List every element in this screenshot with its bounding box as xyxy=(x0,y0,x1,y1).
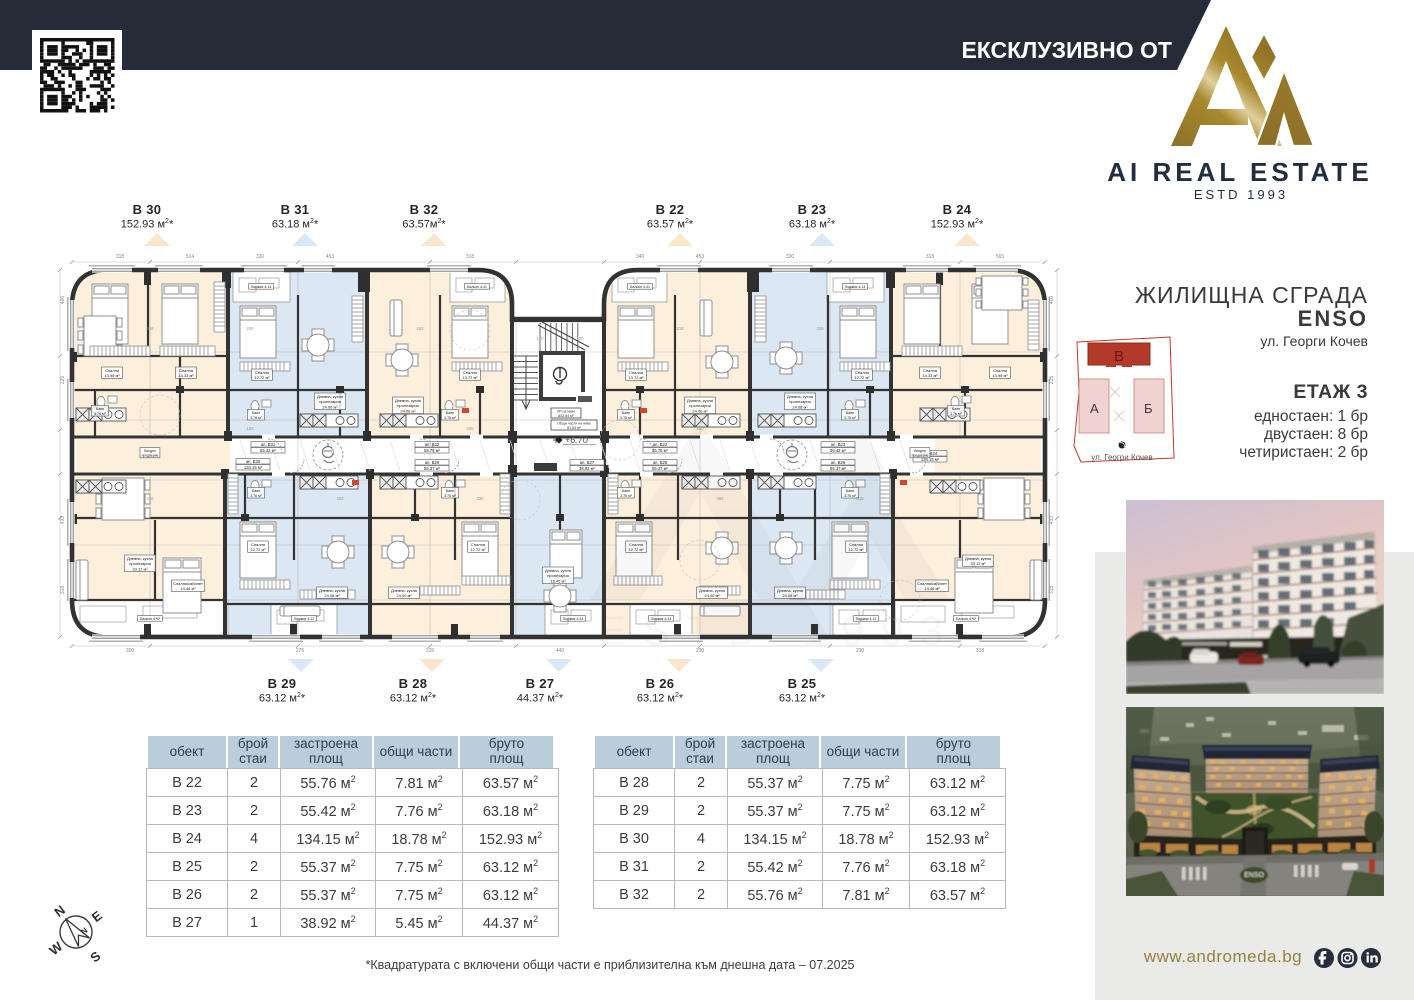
svg-text:Баня: Баня xyxy=(846,411,854,415)
svg-text:81.53 м²: 81.53 м² xyxy=(567,426,581,430)
svg-text:318: 318 xyxy=(60,586,66,595)
svg-text:S: S xyxy=(87,948,103,965)
svg-text:200: 200 xyxy=(247,326,255,331)
svg-text:453: 453 xyxy=(417,326,425,331)
svg-text:514: 514 xyxy=(186,254,195,260)
svg-text:+6.70: +6.70 xyxy=(565,435,588,445)
svg-text:Лоджия 4.14: Лоджия 4.14 xyxy=(251,285,272,289)
svg-text:Б: Б xyxy=(1144,401,1153,416)
svg-text:330: 330 xyxy=(477,496,485,501)
svg-text:Баня: Баня xyxy=(622,411,630,415)
svg-text:170: 170 xyxy=(537,336,545,341)
svg-text:3.76 м²: 3.76 м² xyxy=(444,494,456,498)
svg-text:225: 225 xyxy=(60,376,66,385)
svg-text:55.76 м²: 55.76 м² xyxy=(652,448,669,453)
svg-text:33.12 м²: 33.12 м² xyxy=(970,561,986,566)
svg-text:ESTD 1993: ESTD 1993 xyxy=(1194,187,1288,202)
svg-text:318: 318 xyxy=(466,254,475,260)
svg-text:453: 453 xyxy=(696,254,705,260)
svg-text:832.64 м²: 832.64 м² xyxy=(558,414,574,418)
svg-text:318: 318 xyxy=(976,648,985,654)
svg-text:14.33 м²: 14.33 м² xyxy=(922,373,938,378)
svg-text:55.37 м²: 55.37 м² xyxy=(424,466,441,471)
svg-text:3.76 м²: 3.76 м² xyxy=(94,412,106,416)
svg-text:Входно: Входно xyxy=(914,449,926,453)
svg-text:ап. В31: ап. В31 xyxy=(261,442,276,447)
svg-text:ул. Геогри Кочев: ул. Геогри Кочев xyxy=(1091,453,1153,462)
svg-text:Лоджия 4.14: Лоджия 4.14 xyxy=(845,285,866,289)
svg-text:Лоджия 4.44: Лоджия 4.44 xyxy=(563,617,584,621)
svg-text:24.08 м²: 24.08 м² xyxy=(792,404,808,409)
svg-text:12.72 м²: 12.72 м² xyxy=(854,375,870,380)
svg-text:ап. В30: ап. В30 xyxy=(246,459,261,464)
svg-text:318: 318 xyxy=(147,496,155,501)
svg-text:14.46 м²: 14.46 м² xyxy=(180,586,196,591)
svg-text:440: 440 xyxy=(556,648,565,654)
svg-text:3.76 м²: 3.76 м² xyxy=(620,494,632,498)
svg-text:400: 400 xyxy=(1049,296,1055,305)
svg-text:24.00 м²: 24.00 м² xyxy=(704,593,720,598)
svg-text:13.72 м²: 13.72 м² xyxy=(462,375,478,380)
svg-text:предверие: предверие xyxy=(912,454,929,458)
svg-text:ап. В23: ап. В23 xyxy=(831,442,846,447)
svg-text:453: 453 xyxy=(337,496,345,501)
svg-text:Балкон 4.92: Балкон 4.92 xyxy=(140,617,160,621)
svg-text:318: 318 xyxy=(1049,586,1055,595)
svg-text:13.96 м²: 13.96 м² xyxy=(992,373,1008,378)
svg-text:13.96 м²: 13.96 м² xyxy=(104,373,120,378)
svg-text:400: 400 xyxy=(60,296,66,305)
svg-text:3.76 м²: 3.76 м² xyxy=(844,416,856,420)
svg-text:55.76 м²: 55.76 м² xyxy=(424,448,441,453)
svg-text:Баня: Баня xyxy=(952,407,960,411)
svg-text:55.42 м²: 55.42 м² xyxy=(260,448,277,453)
svg-text:330: 330 xyxy=(256,254,265,260)
svg-text:12.72 м²: 12.72 м² xyxy=(250,547,266,552)
svg-text:3.76 м²: 3.76 м² xyxy=(250,494,262,498)
svg-text:24.00 м²: 24.00 м² xyxy=(396,593,412,598)
svg-text:ап. В27: ап. В27 xyxy=(580,460,595,465)
svg-text:335: 335 xyxy=(426,648,435,654)
svg-text:453: 453 xyxy=(326,254,335,260)
svg-text:ап. В22: ап. В22 xyxy=(653,442,668,447)
svg-text:AI REAL ESTATE: AI REAL ESTATE xyxy=(1107,157,1372,187)
svg-text:3.76 м²: 3.76 м² xyxy=(250,416,262,420)
svg-text:Баня: Баня xyxy=(446,411,454,415)
svg-text:390: 390 xyxy=(126,648,135,654)
svg-text:12.72 м²: 12.72 м² xyxy=(470,547,486,552)
svg-text:318: 318 xyxy=(926,254,935,260)
svg-text:ап. В29: ап. В29 xyxy=(425,460,440,465)
svg-text:33.12 м²: 33.12 м² xyxy=(132,566,148,571)
svg-text:38.92 м²: 38.92 м² xyxy=(579,466,596,471)
svg-text:Входно: Входно xyxy=(144,449,156,453)
svg-text:24.08 м²: 24.08 м² xyxy=(400,408,416,413)
svg-text:13.72 м²: 13.72 м² xyxy=(628,375,644,380)
svg-text:225: 225 xyxy=(1049,376,1055,385)
svg-text:Баня: Баня xyxy=(622,489,630,493)
svg-text:330: 330 xyxy=(786,254,795,260)
svg-text:Баня: Баня xyxy=(252,489,260,493)
svg-text:А: А xyxy=(1090,401,1099,416)
svg-text:150: 150 xyxy=(247,426,255,431)
svg-text:Балкон 4.41: Балкон 4.41 xyxy=(467,285,487,289)
svg-text:N: N xyxy=(51,902,68,920)
svg-text:В: В xyxy=(1114,348,1124,365)
svg-text:N: N xyxy=(79,926,89,937)
svg-text:318: 318 xyxy=(677,326,685,331)
svg-text:Баня: Баня xyxy=(252,411,260,415)
svg-text:18.40 м²: 18.40 м² xyxy=(550,578,566,583)
svg-text:433: 433 xyxy=(1049,516,1055,525)
svg-text:ESTD 1993: ESTD 1993 xyxy=(598,607,959,654)
svg-text:3.76 м²: 3.76 м² xyxy=(444,416,456,420)
svg-text:55.42 м²: 55.42 м² xyxy=(830,448,847,453)
svg-text:ап. В28: ап. В28 xyxy=(653,460,668,465)
svg-text:120: 120 xyxy=(577,336,585,341)
svg-text:12.72 м²: 12.72 м² xyxy=(254,375,270,380)
svg-text:318: 318 xyxy=(116,254,125,260)
svg-text:E: E xyxy=(89,908,105,925)
svg-text:24.06 м²: 24.06 м² xyxy=(692,408,708,413)
svg-text:134.15 м²: 134.15 м² xyxy=(244,465,263,470)
svg-text:24.08 м²: 24.08 м² xyxy=(324,593,340,598)
svg-text:Баня: Баня xyxy=(446,489,454,493)
svg-text:Лоджия 4.12: Лоджия 4.12 xyxy=(294,617,315,621)
svg-text:Балкон 4.41: Балкон 4.41 xyxy=(630,285,650,289)
svg-text:ENSO: ENSO xyxy=(1244,872,1264,879)
svg-text:330: 330 xyxy=(817,326,825,331)
svg-text:Баня: Баня xyxy=(96,407,104,411)
svg-text:14.33 м²: 14.33 м² xyxy=(178,373,194,378)
svg-text:433: 433 xyxy=(60,516,66,525)
svg-text:318: 318 xyxy=(147,326,155,331)
svg-text:200: 200 xyxy=(467,426,475,431)
svg-text:275: 275 xyxy=(296,648,305,654)
svg-text:предверие: предверие xyxy=(142,454,159,458)
svg-text:3.76 м²: 3.76 м² xyxy=(620,416,632,420)
svg-text:340: 340 xyxy=(636,254,645,260)
svg-text:565: 565 xyxy=(996,254,1005,260)
svg-text:3.76 м²: 3.76 м² xyxy=(950,412,962,416)
svg-text:24.06 м²: 24.06 м² xyxy=(322,404,338,409)
svg-text:55.37 м²: 55.37 м² xyxy=(652,466,669,471)
